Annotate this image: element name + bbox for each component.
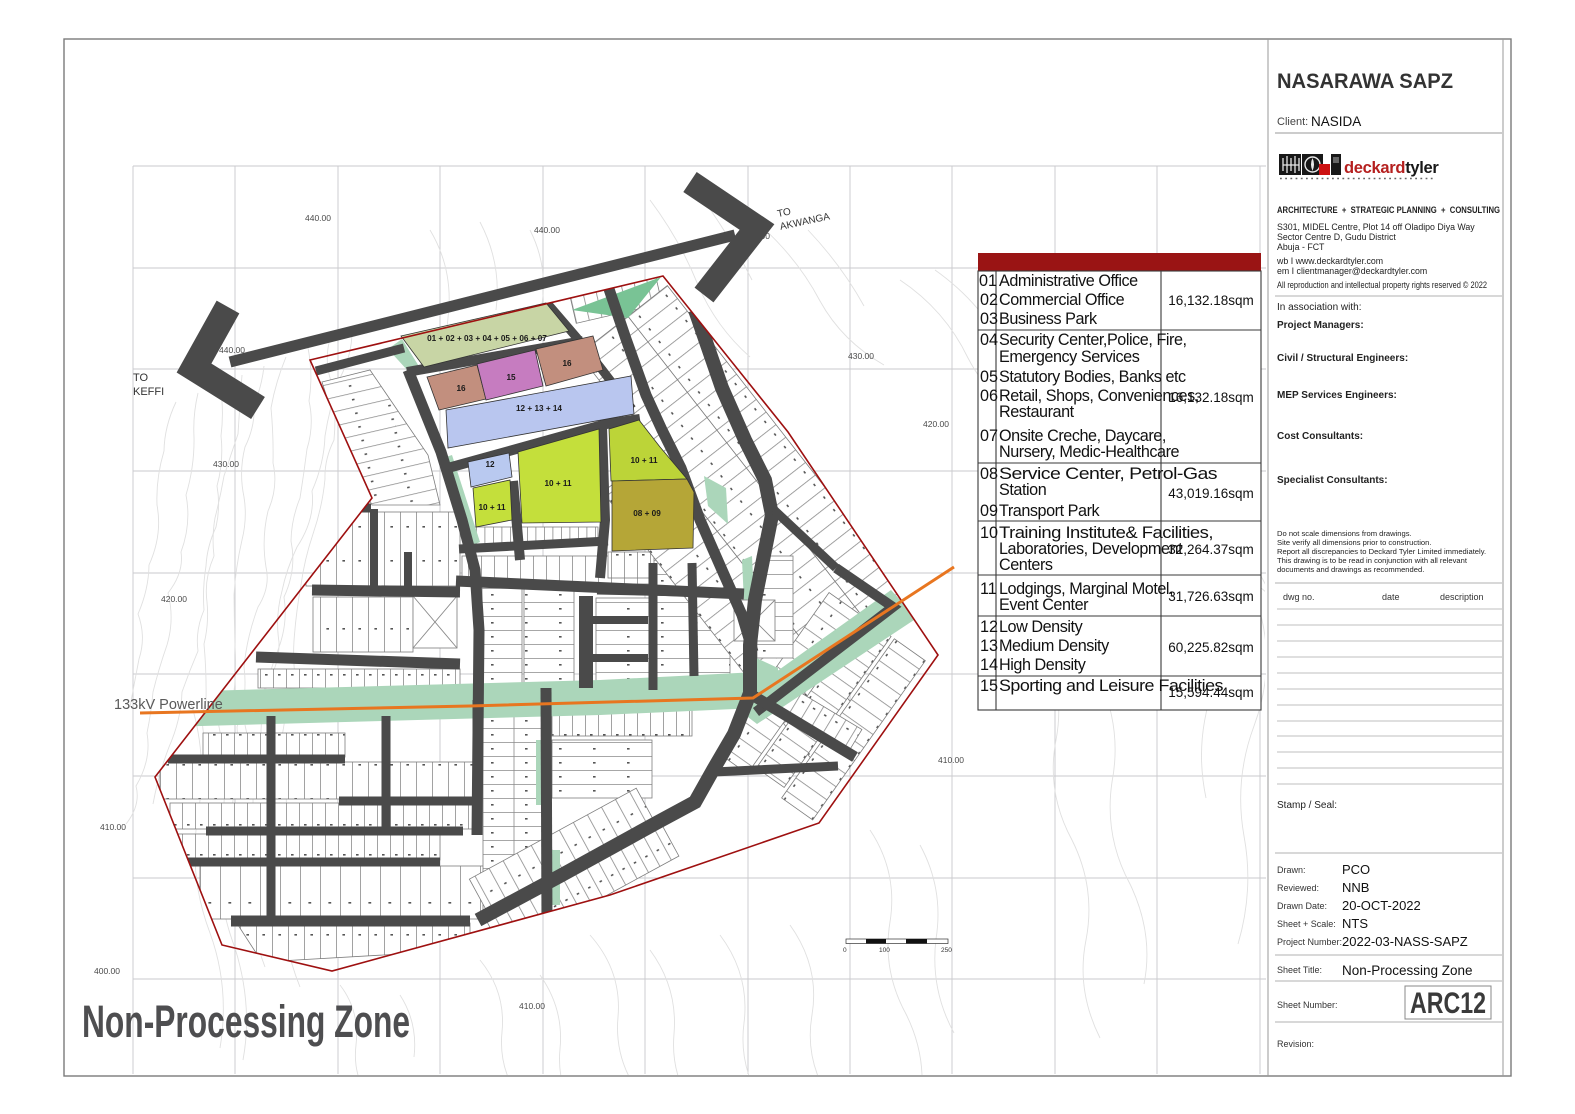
svg-text:16: 16 (456, 384, 466, 393)
svg-text:Emergency Services: Emergency Services (999, 348, 1140, 366)
svg-text:12 + 13 + 14: 12 + 13 + 14 (516, 404, 562, 413)
svg-text:10: 10 (980, 524, 998, 542)
svg-text:10 + 11: 10 + 11 (478, 503, 506, 512)
svg-text:NTS: NTS (1342, 916, 1368, 931)
svg-text:This drawing is to be read in: This drawing is to be read in conjunctio… (1277, 556, 1468, 565)
svg-text:43,019.16sqm: 43,019.16sqm (1168, 486, 1254, 501)
svg-text:Cost Consultants:: Cost Consultants: (1277, 431, 1363, 442)
svg-text:Client:: Client: (1277, 116, 1308, 128)
svg-text:Sector Centre D, Gudu District: Sector Centre D, Gudu District (1277, 232, 1396, 242)
svg-text:Specialist Consultants:: Specialist Consultants: (1277, 475, 1388, 486)
svg-text:NASIDA: NASIDA (1311, 114, 1361, 129)
svg-text:16,132.18sqm: 16,132.18sqm (1168, 390, 1254, 405)
svg-text:Project Managers:: Project Managers: (1277, 320, 1364, 331)
svg-text:High Density: High Density (999, 656, 1087, 674)
svg-text:15,594.44sqm: 15,594.44sqm (1168, 685, 1254, 700)
svg-text:In association with:: In association with: (1277, 302, 1362, 313)
svg-text:description: description (1440, 592, 1484, 602)
svg-text:16: 16 (562, 359, 572, 368)
svg-text:Event Center: Event Center (999, 596, 1089, 614)
svg-text:13: 13 (980, 637, 998, 655)
svg-text:deckardtyler: deckardtyler (1344, 159, 1439, 177)
svg-text:15: 15 (506, 373, 516, 382)
svg-text:Low Density: Low Density (999, 618, 1084, 636)
svg-text:15: 15 (980, 677, 998, 695)
svg-text:Restaurant: Restaurant (999, 403, 1075, 421)
svg-text:420.00: 420.00 (923, 419, 949, 429)
svg-text:TO: TO (133, 372, 149, 384)
svg-text:01 + 02 + 03 + 04 + 05 + 06 +: 01 + 02 + 03 + 04 + 05 + 06 + 07 (427, 334, 547, 343)
svg-text:PCO: PCO (1342, 862, 1370, 877)
svg-text:Sheet Title:: Sheet Title: (1277, 965, 1322, 975)
svg-text:05: 05 (980, 368, 998, 386)
svg-text:11: 11 (980, 580, 997, 598)
svg-text:Revision:: Revision: (1277, 1039, 1314, 1049)
svg-text:08: 08 (980, 465, 998, 483)
svg-text:Security Center,Police, Fire,: Security Center,Police, Fire, (999, 331, 1187, 349)
svg-text:410.00: 410.00 (519, 1001, 545, 1011)
svg-text:MEP Services Engineers:: MEP Services Engineers: (1277, 390, 1397, 401)
svg-text:ARCHITECTURE + STRATEGIC PLA: ARCHITECTURE + STRATEGIC PLANNING + CONS… (1277, 205, 1500, 216)
svg-text:100: 100 (879, 947, 890, 954)
svg-text:Project Number:: Project Number: (1277, 937, 1342, 947)
svg-text:documents and drawings as reco: documents and drawings as recommended. (1277, 565, 1424, 574)
svg-text:12: 12 (980, 618, 998, 636)
svg-text:Site verify all dimensions pri: Site verify all dimensions prior to cons… (1277, 538, 1431, 547)
svg-text:410.00: 410.00 (100, 822, 126, 832)
svg-text:Non-Processing Zone: Non-Processing Zone (82, 996, 410, 1047)
svg-text:Business Park: Business Park (999, 310, 1098, 328)
svg-text:430.00: 430.00 (848, 351, 874, 361)
svg-text:430.00: 430.00 (213, 459, 239, 469)
svg-text:16,132.18sqm: 16,132.18sqm (1168, 293, 1254, 308)
svg-text:Commercial Office: Commercial Office (999, 291, 1125, 309)
svg-text:Sheet Number:: Sheet Number: (1277, 1000, 1338, 1010)
svg-text:0: 0 (843, 947, 847, 954)
svg-text:14: 14 (980, 656, 998, 674)
svg-text:20-OCT-2022: 20-OCT-2022 (1342, 898, 1421, 913)
svg-text:410.00: 410.00 (938, 755, 964, 765)
svg-text:em I clientmanager@deckardtyle: em I clientmanager@deckardtyler.com (1277, 266, 1427, 276)
svg-text:04: 04 (980, 331, 998, 349)
svg-text:60,225.82sqm: 60,225.82sqm (1168, 640, 1254, 655)
svg-text:10 + 11: 10 + 11 (544, 479, 572, 488)
svg-text:01: 01 (979, 272, 997, 290)
svg-text:KEFFI: KEFFI (133, 386, 164, 398)
svg-text:dwg no.: dwg no. (1283, 592, 1315, 602)
svg-text:Stamp / Seal:: Stamp / Seal: (1277, 800, 1337, 811)
svg-text:133kV Powerline: 133kV Powerline (114, 697, 223, 713)
svg-text:420.00: 420.00 (161, 594, 187, 604)
svg-text:Civil / Structural Engineers:: Civil / Structural Engineers: (1277, 353, 1408, 364)
svg-text:Station: Station (999, 481, 1046, 499)
svg-text:ARC12: ARC12 (1410, 987, 1486, 1020)
svg-text:Drawn Date:: Drawn Date: (1277, 901, 1327, 911)
svg-text:Drawn:: Drawn: (1277, 865, 1306, 875)
svg-text:Abuja - FCT: Abuja - FCT (1277, 242, 1325, 252)
svg-text:12: 12 (485, 460, 495, 469)
svg-text:Nursery, Medic-Healthcare: Nursery, Medic-Healthcare (999, 443, 1180, 461)
svg-text:32,264.37sqm: 32,264.37sqm (1168, 542, 1254, 557)
svg-text:All reproduction and intellect: All reproduction and intellectual proper… (1277, 280, 1487, 290)
svg-text:10 + 11: 10 + 11 (630, 456, 658, 465)
svg-text:Do not scale dimensions from d: Do not scale dimensions from drawings. (1277, 529, 1412, 538)
svg-text:wb I www.deckardtyler.com: wb I www.deckardtyler.com (1276, 256, 1383, 266)
svg-text:Statutory Bodies, Banks etc: Statutory Bodies, Banks etc (999, 368, 1186, 386)
svg-text:Administrative Office: Administrative Office (999, 272, 1138, 290)
svg-text:440.00: 440.00 (305, 213, 331, 223)
svg-text:09: 09 (980, 502, 998, 520)
svg-text:NNB: NNB (1342, 880, 1369, 895)
svg-text:Sheet + Scale:: Sheet + Scale: (1277, 919, 1336, 929)
svg-text:date: date (1382, 592, 1400, 602)
svg-text:03: 03 (980, 310, 998, 328)
svg-text:02: 02 (980, 291, 998, 309)
svg-text:Non-Processing Zone: Non-Processing Zone (1342, 963, 1473, 978)
svg-text:31,726.63sqm: 31,726.63sqm (1168, 589, 1254, 604)
svg-text:400.00: 400.00 (94, 966, 120, 976)
svg-text:06: 06 (980, 387, 998, 405)
svg-text:NASARAWA SAPZ: NASARAWA SAPZ (1277, 70, 1453, 93)
svg-text:Reviewed:: Reviewed: (1277, 883, 1319, 893)
svg-text:07: 07 (980, 427, 998, 445)
svg-text:Centers: Centers (999, 556, 1053, 574)
svg-text:08 + 09: 08 + 09 (633, 509, 661, 518)
svg-text:440.00: 440.00 (534, 225, 560, 235)
svg-text:250: 250 (941, 947, 952, 954)
svg-text:Medium Density: Medium Density (999, 637, 1110, 655)
svg-text:S301, MIDEL Centre, Plot 14 of: S301, MIDEL Centre, Plot 14 off Oladipo … (1277, 222, 1475, 232)
svg-text:Report all discrepancies to De: Report all discrepancies to Deckard Tyle… (1277, 547, 1486, 556)
svg-text:2022-03-NASS-SAPZ: 2022-03-NASS-SAPZ (1342, 934, 1468, 949)
svg-text:Transport Park: Transport Park (999, 502, 1101, 520)
